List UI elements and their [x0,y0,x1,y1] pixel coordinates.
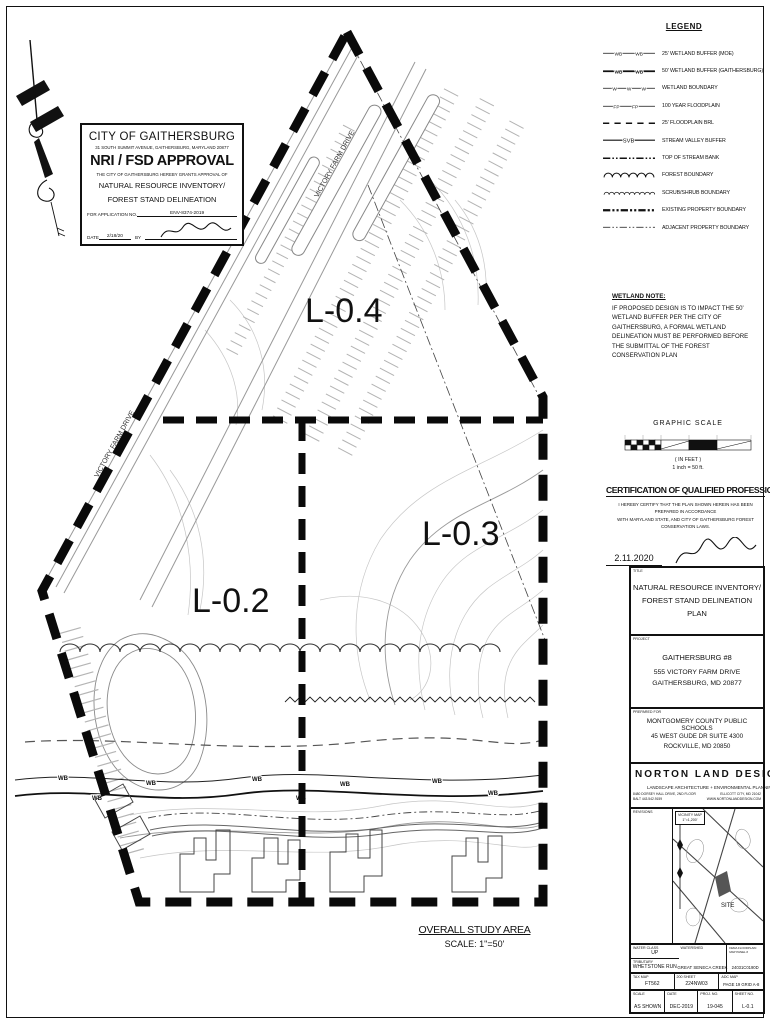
wb-marker: WB [252,777,263,783]
legend-item-label: SCRUB/SHRUB BOUNDARY [662,190,730,196]
firm-section: NORTON LAND DESIGN LANDSCAPE ARCHITECTUR… [631,764,763,810]
stamp-grants-line: THE CITY OF GAITHERSBURG HEREBY GRANTS A… [87,172,237,177]
water-class-cell: WATER CLASS UP [631,945,679,959]
area-label-l04: L-0.4 [305,292,383,330]
legend-item: WB WB 25' WETLAND BUFFER (MOE) [603,45,765,62]
firm-name: NORTON LAND DESIGN [635,769,770,780]
date-cell: DATE DEC-2019 [665,991,698,1012]
stamp-application-label: FOR APPLICATION NO. [87,212,137,217]
fp-marker: FP [613,104,619,110]
vicinity-map: VICINITY MAP 1"=1,200' [673,809,763,943]
legend-item-label: 100 YEAR FLOODPLAIN [662,103,720,109]
vicinity-site-label: SITE [721,903,734,909]
tax-map-cell: TAX MAP FT562 [631,974,675,989]
w-marker: W [612,87,617,93]
wetland-buffer-lines: WB WB WB WB WB WB WB WB [15,775,543,802]
title-block: TITLE NATURAL RESOURCE INVENTORY/ FOREST… [629,566,765,1014]
wb-marker: WB [488,791,499,797]
project-number-value: 19-045 [707,1004,723,1010]
firm-tagline: LANDSCAPE ARCHITECTURE + ENVIRONMENTAL P… [647,785,761,790]
scrub-shrub-boundary-symbol [603,187,655,199]
forest-boundary-symbol [603,169,655,181]
wetland-note: WETLAND NOTE: IF PROPOSED DESIGN IS TO I… [612,293,764,361]
client-city: ROCKVILLE, MD 20850 [664,742,731,752]
tax-map-label: TAX MAP [633,975,649,979]
prepared-for-label: PREPARED FOR [633,710,661,714]
tributary-label: TRIBUTARY [633,960,653,964]
tax-map-value: FT562 [645,981,659,987]
sheet-number-label: SHEET NO. [735,992,754,996]
scale-ratio-label: 1 inch = 50 ft. [612,465,764,471]
legend: LEGEND WB WB 25' WETLAND BUFFER (MOE) WB… [603,22,765,236]
floodplain-brl-symbol [603,117,655,129]
top-of-stream-bank-symbol [603,152,655,164]
scale-bar [623,435,753,453]
fema-label: FEMA FLOODPLAIN MAP PANEL # [729,946,763,954]
legend-item: TOP OF STREAM BANK [603,149,765,166]
area-label-l02: L-0.2 [192,582,270,620]
legend-item-label: WETLAND BOUNDARY [662,85,718,91]
wetland-note-title: WETLAND NOTE: [612,293,764,300]
legend-item-label: EXISTING PROPERTY BOUNDARY [662,207,746,213]
title-section-label: TITLE [633,569,643,573]
area-label-l03: L-0.3 [422,515,500,553]
svb-marker: SVB [623,139,635,145]
legend-item: W W W WETLAND BOUNDARY [603,80,765,97]
wb-marker: WB [635,69,643,75]
legend-item: WB WB 50' WETLAND BUFFER (GAITHERSBURG) [603,62,765,79]
fema-cell: FEMA FLOODPLAIN MAP PANEL # 24031C0190D [727,945,763,972]
stamp-signature [145,223,237,240]
parking-islands [254,92,442,265]
water-class-value: UP [651,950,658,956]
legend-item: SCRUB/SHRUB BOUNDARY [603,184,765,201]
graphic-scale: GRAPHIC SCALE ( IN FEET ) 1 [612,420,764,471]
site-data-row-2: TAX MAP FT562 200 SHEET 224NW03 ADC MAP … [631,974,763,991]
certification-title: CERTIFICATION OF QUALIFIED PROFESSIONAL [606,485,765,497]
legend-item-label: ADJACENT PROPERTY BOUNDARY [662,225,749,231]
legend-item-label: FOREST BOUNDARY [662,172,713,178]
legend-item-label: 25' WETLAND BUFFER (MOE) [662,51,734,57]
legend-item-label: TOP OF STREAM BANK [662,155,719,161]
certification-body: I HEREBY CERTIFY THAT THE PLAN SHOWN HER… [606,501,765,531]
project-number-label: PROJ. NO. [700,992,718,996]
wetland-boundary-symbol: W W W [603,82,655,94]
plan-sheet: WB WB WB WB WB WB WB WB [0,0,770,1024]
firm-phone: BALT 443.542.9159 [633,797,662,802]
wb-marker: WB [432,779,443,785]
adc-map-cell: ADC MAP PAGE 19 GRID A-8 [719,974,763,989]
stamp-nri-line: NATURAL RESOURCE INVENTORY/ [87,181,237,190]
study-area-caption: OVERALL STUDY AREA SCALE: 1"=50' [392,924,557,949]
sheet-number-value: L-0.1 [742,1004,753,1010]
water-class-label: WATER CLASS [633,946,658,950]
project-section: PROJECT GAITHERSBURG #8 555 VICTORY FARM… [631,636,763,708]
stream-lines [148,810,543,837]
wb-marker: WB [146,781,157,787]
tributary-value: WHETSTONE RUN [633,964,677,970]
sheet200-value: 224NW03 [685,981,707,987]
wb-marker: WB [635,52,643,58]
site-data-row-1: WATER CLASS UP TRIBUTARY WHETSTONE RUN W… [631,945,763,974]
revisions-label: REVISIONS [633,810,653,814]
scale-label: SCALE [633,992,645,996]
road-label-victory-farm-drive: VICTORY FARM DRIVE [94,409,137,479]
sheet200-label: 200 SHEET [677,975,696,979]
existing-property-boundary-symbol [603,204,655,216]
sheet200-cell: 200 SHEET 224NW03 [675,974,720,989]
stamp-city: CITY OF GAITHERSBURG [87,131,237,143]
watershed-cell: WATERSHED GREAT SENECA CREEK [679,945,728,972]
wetland-buffer-25-symbol: WB WB [603,47,655,59]
professional-signature-icon [670,537,762,567]
scale-cell: SCALE AS SHOWN [631,991,665,1012]
prepared-for-section: PREPARED FOR MONTGOMERY COUNTY PUBLIC SC… [631,709,763,764]
w-marker: W [641,87,646,93]
revisions-vicinity-section: REVISIONS VICINITY MAP 1"=1,200' [631,809,763,945]
wb-marker: WB [614,52,622,58]
adc-map-label: ADC MAP [721,975,737,979]
floodplain-100yr-symbol: FP FP [603,100,655,112]
plan-title: NATURAL RESOURCE INVENTORY/ FOREST STAND… [631,582,763,621]
watershed-value: GREAT SENECA CREEK [677,965,727,970]
legend-item-label: 50' WETLAND BUFFER (GAITHERSBURG) [662,68,763,74]
project-number-cell: PROJ. NO. 19-045 [698,991,732,1012]
fp-marker: FP [632,104,638,110]
stamp-approval-title: NRI / FSD APPROVAL [87,153,237,169]
graphic-scale-title: GRAPHIC SCALE [612,420,764,427]
vicinity-map-header: VICINITY MAP 1"=1,200' [675,811,705,824]
date-value: DEC-2019 [670,1004,693,1010]
stamp-fsd-line: FOREST STAND DELINEATION [87,195,237,204]
client-address: 45 WEST GUDE DR SUITE 4300 [651,732,743,742]
legend-item: 25' FLOODPLAIN BRL [603,115,765,132]
adjacent-property-boundary-symbol [603,221,655,233]
firm-website: WWW.NORTONLANDDESIGN.COM [707,797,761,802]
legend-item: EXISTING PROPERTY BOUNDARY [603,202,765,219]
legend-item: SVB STREAM VALLEY BUFFER [603,132,765,149]
legend-item: ADJACENT PROPERTY BOUNDARY [603,219,765,236]
w-marker: W [627,87,632,93]
legend-item-label: STREAM VALLEY BUFFER [662,138,726,144]
tributary-cell: TRIBUTARY WHETSTONE RUN [631,959,679,972]
project-name: GAITHERSBURG #8 [662,653,731,662]
stream-valley-buffer-symbol: SVB [603,134,655,146]
north-arrow-icon [29,40,65,236]
wb-marker: WB [340,782,351,788]
signature-icon [157,221,235,241]
approval-stamp: CITY OF GAITHERSBURG 31 SOUTH SUMMIT AVE… [80,123,244,246]
project-section-label: PROJECT [633,637,650,641]
wetland-buffer-50-symbol: WB WB [603,65,655,77]
date-label: DATE [667,992,676,996]
title-section: TITLE NATURAL RESOURCE INVENTORY/ FOREST… [631,568,763,636]
legend-item-label: 25' FLOODPLAIN BRL [662,120,714,126]
site-data-row-3: SCALE AS SHOWN DATE DEC-2019 PROJ. NO. 1… [631,991,763,1012]
stamp-date-value: 2/18/20 [99,234,131,240]
scale-units-label: ( IN FEET ) [612,457,764,463]
stamp-date-label: DATE [87,235,99,240]
stamp-by-label: BY [135,235,141,240]
vicinity-map-scale: 1"=1,200' [678,818,702,823]
legend-item: FOREST BOUNDARY [603,167,765,184]
stamp-application-number: ENV-8374-2019 [137,211,237,217]
client-name: MONTGOMERY COUNTY PUBLIC SCHOOLS [631,718,763,732]
certification-date: 2.11.2020 [606,553,662,566]
offsite-buildings [16,80,64,132]
legend-item: FP FP 100 YEAR FLOODPLAIN [603,97,765,114]
study-area-title: OVERALL STUDY AREA [392,924,557,936]
stamp-address: 31 SOUTH SUMMIT AVENUE, GAITHERSBURG, MA… [87,145,237,150]
scrub-shrub-boundary-line [285,697,535,702]
scale-value: AS SHOWN [634,1004,661,1010]
wb-marker: WB [614,69,622,75]
project-address: 555 VICTORY FARM DRIVE [654,667,741,679]
watershed-label: WATERSHED [681,946,704,950]
revisions-panel: REVISIONS [631,809,673,943]
adc-map-value: PAGE 19 GRID A-8 [723,982,759,987]
study-area-scale: SCALE: 1"=50' [392,939,557,949]
legend-title: LEGEND [603,22,765,31]
vicinity-map-drawing: SITE [673,809,763,943]
wb-marker: WB [58,776,69,782]
sheet-number-cell: SHEET NO. L-0.1 [733,991,763,1012]
project-city: GAITHERSBURG, MD 20877 [652,678,742,690]
forest-boundary-line [60,644,500,652]
wetland-note-body: IF PROPOSED DESIGN IS TO IMPACT THE 50' … [612,304,764,361]
fema-value: 24031C0190D [732,965,759,970]
